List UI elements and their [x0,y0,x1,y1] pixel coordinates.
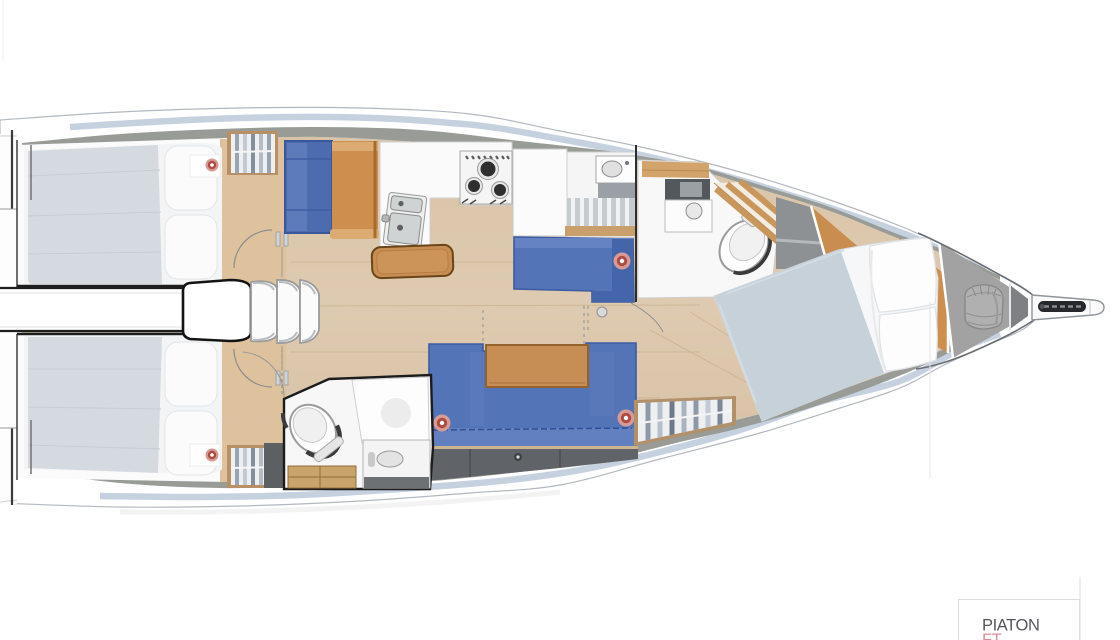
svg-text:FT: FT [982,631,1002,640]
